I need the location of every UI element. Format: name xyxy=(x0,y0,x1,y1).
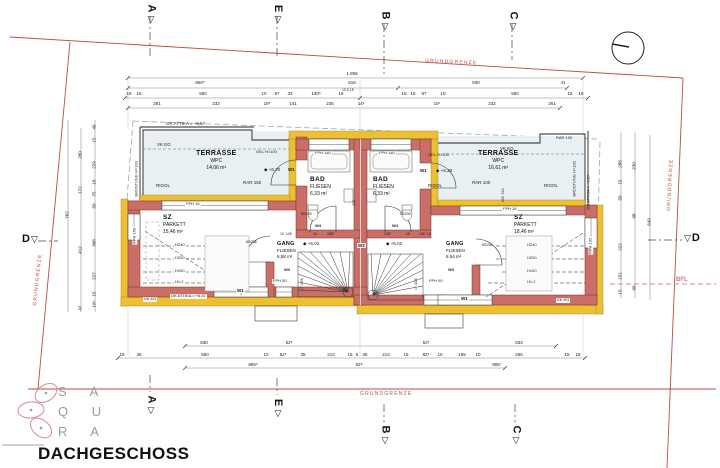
dim-value: 830 xyxy=(472,80,480,85)
section-marker-label: E xyxy=(273,399,284,406)
section-triangle-icon: ▽ xyxy=(382,436,389,445)
dim-value: 35 xyxy=(136,352,141,357)
fph90-right: FPH 90 xyxy=(428,279,444,284)
dim-value: 308 xyxy=(92,239,97,247)
dim-value: 5 xyxy=(356,352,359,357)
dim-value: 18 xyxy=(575,352,580,357)
dim-value: 141 xyxy=(289,101,297,106)
dim-value: 885⁷ xyxy=(492,362,501,367)
vk-eg-terrace-left: VK EG xyxy=(157,142,171,147)
w3-left: W3 xyxy=(284,268,290,273)
dim-15-5-15: 15 5 15 xyxy=(342,88,354,92)
section-marker-top-e: E ▽ xyxy=(270,3,286,24)
section-triangle-icon: ▽ xyxy=(31,234,38,245)
door-80-230-left: 80/230 xyxy=(301,212,312,216)
dim-value: 15 xyxy=(403,352,408,357)
dim-value: 10 xyxy=(263,352,268,357)
dim-value: 1.898 xyxy=(346,71,357,76)
room-finish: FLIESEN xyxy=(310,184,331,190)
dim-value: 222 xyxy=(618,243,623,251)
dim-value: 830 xyxy=(200,340,208,345)
section-marker-bottom-b: B ▽ xyxy=(377,424,393,445)
dim-value: 41 xyxy=(560,80,565,85)
w1-terrace-right: W1 xyxy=(420,168,427,173)
section-marker-bottom-c: C ▽ xyxy=(508,424,524,445)
dim-value: 18 xyxy=(578,91,583,96)
vk-eg-terrace-right: VK EG xyxy=(500,146,514,151)
ok-attika-south: OK ATTIKA = +6,37 xyxy=(170,294,207,299)
w2-center: W2 xyxy=(357,243,366,248)
room-label-gang-right: GANG FLIESEN 6,54 m² xyxy=(446,241,465,259)
dim-value: 33 xyxy=(287,91,292,96)
vk-eg-south-right: VK EG xyxy=(556,298,570,303)
stair-right xyxy=(368,254,423,300)
dim-105-10-right: 105 10 xyxy=(419,232,431,236)
room-finish: FLIESEN xyxy=(446,248,465,253)
dim-value: 236 xyxy=(326,101,334,106)
fph140-right: FPH 140 xyxy=(378,151,396,156)
dim-value: 18 xyxy=(119,352,124,357)
dim-value: 35 xyxy=(362,352,367,357)
room-label-terrasse-right: TERRASSE WPC 16,61 m² xyxy=(478,150,519,171)
rar-top-right: RAR 100 xyxy=(556,136,572,141)
dim-value: 15 xyxy=(564,352,569,357)
dim-value: 18⁵ xyxy=(92,301,97,308)
dim-value: 15 xyxy=(136,91,141,96)
dim-10-105-left: 10 105 xyxy=(280,232,292,236)
fph140-left: FPH 140 xyxy=(314,151,332,156)
fph16-right: FPH 16 xyxy=(502,207,518,212)
gel-h100-right: GEL H=100 xyxy=(428,153,449,158)
dim-value: 18 xyxy=(126,91,131,96)
bfl-label: BFL xyxy=(676,277,688,283)
room-name: BAD xyxy=(310,176,331,183)
room-name: SZ xyxy=(514,214,537,221)
fph16-left: FPH 16 xyxy=(185,202,201,207)
dim-value: 261 xyxy=(548,101,556,106)
fph50-left: FPH 50 xyxy=(272,279,288,284)
stair-right-steps: 17,4/26 xyxy=(414,278,418,290)
dim-value: 10 xyxy=(437,352,442,357)
dim-value: 229 xyxy=(92,161,97,169)
rigol-terrace-left: RIGOL xyxy=(156,183,170,188)
w4-left: W4 xyxy=(315,224,321,229)
dim-value: 213 xyxy=(382,352,390,357)
section-triangle-icon: ▽ xyxy=(684,233,691,244)
room-area: 15,46 m² xyxy=(163,229,186,235)
dim-value: 265 xyxy=(515,352,523,357)
dim-value: 18 xyxy=(410,91,415,96)
dim-value: 280 xyxy=(78,151,83,159)
section-marker-left-d: D ▽ xyxy=(22,233,38,245)
dim-15-gang-right: 15 xyxy=(406,232,410,236)
dim-value: 212 xyxy=(327,352,335,357)
dim-value: 82⁵ xyxy=(423,352,430,357)
dim-value: 10 xyxy=(440,91,445,96)
h150-right: H150 xyxy=(526,269,538,274)
section-triangle-icon: ▽ xyxy=(148,406,155,415)
dim-value: 227 xyxy=(92,272,97,280)
rar-terrace-right: RAR 100 xyxy=(472,180,490,185)
dim-value: 50 xyxy=(92,203,97,208)
dim-value: 560 xyxy=(511,91,519,96)
fph132-right: FPH 132 xyxy=(588,237,593,255)
room-area: 14,06 m² xyxy=(196,165,237,171)
dim-value: 185 xyxy=(458,352,466,357)
dim-value: 18⁵ xyxy=(264,101,271,106)
gel-h100-left: GEL H=100 xyxy=(256,150,277,155)
section-triangle-icon: ▽ xyxy=(513,436,520,445)
dim-value: 35 xyxy=(300,352,305,357)
dim-value: 15 xyxy=(618,179,623,184)
dim-2085-left: 208⁵ xyxy=(327,232,334,236)
room-finish: WPC xyxy=(478,158,519,164)
bruestung-left: BRÜSTUNG H=100 xyxy=(134,161,139,196)
level-602-left: ◆ +6,02 xyxy=(303,241,319,246)
w1-south-left: W1 xyxy=(236,288,245,293)
room-finish: PARKETT xyxy=(514,222,537,228)
dim-value: 52¹ xyxy=(423,340,430,345)
h12-left: H1:2 xyxy=(174,280,184,285)
fph150-left: FPH 150 xyxy=(132,227,137,245)
rigol-terrace-right-1: RIGOL xyxy=(428,183,442,188)
dim-2085-right: 208⁵ xyxy=(384,232,391,236)
section-marker-label: A xyxy=(145,396,156,404)
bruestung-right: BRÜSTUNG H=100 xyxy=(572,161,577,196)
dim-15-gang-left: 15 xyxy=(313,232,317,236)
h200-right: H200 xyxy=(526,256,538,261)
dim-value: 130⁵ xyxy=(311,91,320,96)
dim-value: 15 xyxy=(567,91,572,96)
dim-value: 15 xyxy=(92,137,97,142)
dim-value: 15 xyxy=(347,352,352,357)
room-area: 6,54 m² xyxy=(446,254,465,259)
dim-value: 75 xyxy=(92,191,97,196)
room-name: GANG xyxy=(277,241,296,247)
dim-value: 87 xyxy=(274,91,279,96)
room-area: 18,46 m² xyxy=(514,229,537,235)
section-marker-right-d: ▽ D xyxy=(684,232,700,244)
door-80-230-right: 80/230 xyxy=(400,212,411,216)
door-80-206-right: 80/206 xyxy=(482,243,493,247)
logo-letters-row: Q U xyxy=(58,404,111,419)
section-triangle-icon: ▽ xyxy=(275,409,282,418)
dim-value: 762 xyxy=(65,211,70,219)
section-marker-label: C xyxy=(510,426,521,434)
dim-value: 52⁵ xyxy=(356,362,363,367)
h240-left: H240 xyxy=(174,243,186,248)
stair-left-steps: 17,4/26 xyxy=(300,278,304,290)
section-marker-top-c: C ▽ xyxy=(505,10,521,31)
room-finish: WPC xyxy=(196,158,237,164)
north-arrow-icon xyxy=(612,32,644,64)
dim-value: 172 xyxy=(78,186,83,194)
w1-south-right: W1 xyxy=(460,296,469,301)
section-marker-top-b: B ▽ xyxy=(377,10,393,31)
dim-value: 361 xyxy=(153,101,161,106)
rigol-terrace-right-2: RIGOL xyxy=(544,183,558,188)
level-620-right: ◆ +6,20 xyxy=(436,168,452,173)
h12-right: H1:2 xyxy=(526,280,536,285)
section-triangle-icon: ▽ xyxy=(382,22,389,31)
dim-value: 230 xyxy=(632,162,637,170)
section-marker-bottom-a: A ▽ xyxy=(143,394,159,415)
section-marker-label: B xyxy=(379,426,390,434)
section-triangle-icon: ▽ xyxy=(148,15,155,24)
dim-value: 96 xyxy=(632,285,637,290)
h200-left: H200 xyxy=(174,256,186,261)
vk-eg-south-left: VK EG xyxy=(143,297,157,302)
dim-value: 87 xyxy=(421,91,426,96)
section-triangle-icon: ▽ xyxy=(510,22,517,31)
dim-value: 98 xyxy=(632,213,637,218)
rar-terrace-left: RAR 150 xyxy=(243,180,261,185)
dim-value: 50 xyxy=(618,195,623,200)
section-triangle-icon: ▽ xyxy=(275,15,282,24)
dim-value: 649 xyxy=(647,218,652,226)
dim-value: 18 xyxy=(92,179,97,184)
section-marker-label: E xyxy=(273,5,284,12)
ok-attika-right: OK ATTIKA = +6,57 xyxy=(586,175,591,210)
room-area: 6,58 m² xyxy=(277,254,296,259)
room-label-terrasse-left: TERRASSE WPC 14,06 m² xyxy=(196,150,237,171)
w1-terrace-left: W1 xyxy=(288,167,295,172)
room-label-gang-left: GANG FLIESEN 6,58 m² xyxy=(277,241,296,259)
room-finish: FLIESEN xyxy=(277,248,296,253)
section-marker-label: B xyxy=(379,12,390,20)
dim-value: 560 xyxy=(199,91,207,96)
dim-value: 560 xyxy=(201,352,209,357)
dim-value: 232 xyxy=(488,101,496,106)
grundgrenze-label-bottom: GRUNDGRENZE xyxy=(360,391,412,397)
level-602-right: ◆ +6,02 xyxy=(386,241,402,246)
room-area: 6,33 m² xyxy=(373,191,394,197)
section-marker-label: C xyxy=(507,12,518,20)
dim-value: 10 xyxy=(475,352,480,357)
logo-letters-row: S A xyxy=(58,384,108,399)
room-area: 16,61 m² xyxy=(478,165,519,171)
dim-value: 885⁵ xyxy=(248,362,257,367)
dim-200-party: 200 xyxy=(352,200,356,206)
page-title: DACHGESCHOSS xyxy=(38,444,189,464)
room-label-sz-right: SZ PARKETT 18,46 m² xyxy=(514,214,537,235)
dim-value: 15 xyxy=(401,91,406,96)
level-620-left: ◆ +6,20 xyxy=(264,167,280,172)
dim-value: 19⁷ xyxy=(434,101,441,106)
h150-left: H150 xyxy=(174,269,186,274)
section-marker-label: A xyxy=(145,5,156,13)
dim-value: 151 xyxy=(618,272,623,280)
room-finish: FLIESEN xyxy=(373,184,394,190)
dim-value: 18 xyxy=(338,91,343,96)
dim-value: 288 xyxy=(618,160,623,168)
dim-value: 49 xyxy=(92,124,97,129)
section-marker-label: D xyxy=(692,232,700,244)
dim-value: 47 xyxy=(78,305,83,310)
room-area: 6,33 m² xyxy=(310,191,331,197)
room-name: TERRASSE xyxy=(196,150,237,157)
section-marker-top-a: A ▽ xyxy=(143,3,159,24)
room-name: SZ xyxy=(163,214,186,221)
dim-value: 518 xyxy=(348,80,356,85)
w3-right: W3 xyxy=(448,268,454,273)
dim-value: 850⁵ xyxy=(195,80,204,85)
dim-value: 82⁵ xyxy=(280,352,287,357)
dim-value: 15 xyxy=(92,291,97,296)
room-name: BAD xyxy=(373,176,394,183)
door-80-206-left: 80/206 xyxy=(246,240,257,244)
w4-right: W4 xyxy=(392,224,398,229)
dim-250-210: 250 210 xyxy=(501,188,505,202)
dim-value: 633 xyxy=(515,340,523,345)
logo-letters-row: R A xyxy=(58,424,109,439)
section-marker-bottom-e: E ▽ xyxy=(270,397,286,418)
room-label-sz-left: SZ PARKETT 15,46 m² xyxy=(163,214,186,235)
floor-plan-page: A ▽ E ▽ B ▽ C ▽ A ▽ E ▽ B ▽ C ▽ D ▽ ▽ D … xyxy=(0,0,720,468)
dim-value: 52⁵ xyxy=(286,340,293,345)
room-label-bad-left: BAD FLIESEN 6,33 m² xyxy=(310,176,331,197)
room-finish: PARKETT xyxy=(163,222,186,228)
dim-value: 14¹ xyxy=(358,101,365,106)
dim-value: 412 xyxy=(78,246,83,254)
dim-value: 15 xyxy=(618,289,623,294)
room-label-bad-right: BAD FLIESEN 6,33 m² xyxy=(373,176,394,197)
h240-right: H240 xyxy=(526,243,538,248)
section-marker-label: D xyxy=(22,233,30,245)
ok-attika-top: OK ATTIKA = +6,57 xyxy=(166,121,205,126)
room-name: GANG xyxy=(446,241,465,247)
dim-value: 10 xyxy=(261,91,266,96)
dim-value: 232 xyxy=(212,101,220,106)
